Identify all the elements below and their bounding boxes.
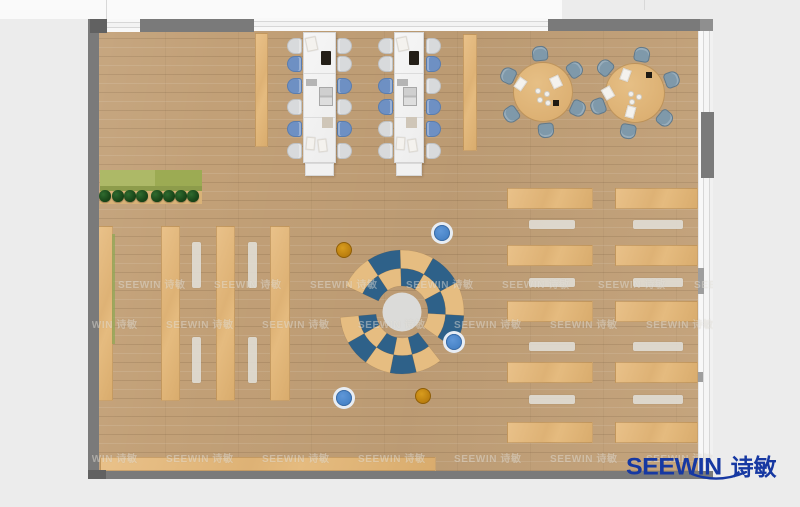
wall-top-right-segment (548, 19, 700, 31)
desk-seam (304, 73, 335, 74)
plant (124, 190, 136, 202)
watermark: SEEWIN 诗敏 (214, 276, 282, 291)
desk-chair (426, 121, 441, 137)
reading-table (615, 188, 698, 209)
wall-cabinet (255, 33, 268, 147)
round-meeting-table (513, 62, 573, 122)
reading-table (507, 188, 593, 209)
reading-table-column (216, 226, 235, 401)
planter-box (155, 170, 202, 186)
watermark: SEEWIN 诗敏 (454, 450, 522, 465)
wall-left (88, 19, 99, 479)
paper (407, 138, 418, 152)
desk-chair (378, 78, 393, 94)
plate (535, 88, 541, 94)
desk-chair (287, 38, 302, 54)
plant (99, 190, 111, 202)
desk-chair (426, 38, 441, 54)
desk-chair (287, 56, 302, 72)
bench-runner (248, 337, 257, 383)
watermark: SEEWIN 诗敏 (454, 316, 522, 331)
desk-accessory (397, 79, 408, 86)
reading-table (615, 422, 698, 443)
bench-runner (529, 395, 575, 404)
watermark: SEEWIN 诗敏 (262, 316, 330, 331)
plate (537, 97, 543, 103)
watermark: SEEWIN 诗敏 (166, 450, 234, 465)
seewin-logo: SEEWIN 诗敏 (626, 448, 777, 482)
desk-chair (426, 143, 441, 159)
desk-chair (337, 38, 352, 54)
bench-runner (529, 220, 575, 229)
tablet (322, 117, 333, 128)
watermark: SEEWIN 诗敏 (358, 316, 426, 331)
meeting-chair (531, 45, 548, 61)
tablet (553, 100, 559, 106)
wall-bottom (88, 471, 713, 479)
watermark: SEEWIN 诗敏 (358, 450, 426, 465)
stool-blue (336, 390, 352, 406)
desk-chair (337, 99, 352, 115)
watermark: SEEWIN 诗敏 (550, 316, 618, 331)
logo-swoosh-icon (690, 471, 750, 483)
desk-chair (337, 143, 352, 159)
window-mullion (698, 372, 703, 382)
desk-end-cabinet (305, 163, 334, 176)
floor-content: SEEWIN 诗敏SEEWIN 诗敏SEEWIN 诗敏SEEWIN 诗敏SEEW… (92, 20, 713, 478)
bench-runner (633, 220, 683, 229)
watermark: SEEWIN 诗敏 (92, 316, 138, 331)
laptop (409, 51, 419, 65)
meeting-chair (633, 46, 651, 64)
exterior-line (644, 0, 645, 10)
desk-accessory (306, 79, 317, 86)
watermark: SEEWIN 诗敏 (694, 276, 713, 291)
plant (151, 190, 163, 202)
desk-end-cabinet (396, 163, 422, 176)
plate (628, 91, 634, 97)
plate (636, 94, 642, 100)
desk-chair (337, 121, 352, 137)
paper (305, 137, 315, 151)
plant (112, 190, 124, 202)
stool-blue (446, 334, 462, 350)
desk-chair (287, 121, 302, 137)
stool-orange (336, 242, 352, 258)
meeting-chair (662, 70, 682, 90)
wall-cabinet (463, 34, 477, 151)
bench-runner (192, 337, 201, 383)
stool-blue (434, 225, 450, 241)
desk-chair (378, 56, 393, 72)
meeting-chair (619, 123, 637, 141)
desk-chair (287, 143, 302, 159)
desk-chair (378, 143, 393, 159)
lounge-circle-seating (327, 237, 477, 387)
desk-chair (426, 56, 441, 72)
bench-runner (529, 342, 575, 351)
plant (136, 190, 148, 202)
watermark: SEEWIN 诗敏 (118, 276, 186, 291)
wall-corner-bottom-left (88, 470, 106, 479)
watermark: SEEWIN 诗敏 (166, 316, 234, 331)
desk-seam (395, 73, 423, 74)
reading-table (507, 245, 593, 266)
bench-runner (633, 342, 683, 351)
laptop (321, 51, 331, 65)
bench-runner (633, 395, 683, 404)
desk-chair (337, 56, 352, 72)
desk-chair (337, 78, 352, 94)
wood-floor: SEEWIN 诗敏SEEWIN 诗敏SEEWIN 诗敏SEEWIN 诗敏SEEW… (92, 20, 713, 478)
watermark: SEEWIN 诗敏 (598, 276, 666, 291)
plate (545, 100, 551, 106)
plate (544, 91, 550, 97)
reading-table (615, 362, 698, 383)
desk-chair (378, 38, 393, 54)
wall-pillar-right (701, 112, 714, 178)
reading-table-column (270, 226, 290, 401)
watermark: SEEWIN 诗敏 (92, 450, 138, 465)
lounge-seat-segment (390, 354, 416, 374)
plant (187, 190, 199, 202)
watermark: SEEWIN 诗敏 (262, 450, 330, 465)
plate (629, 99, 635, 105)
desk-chair (378, 99, 393, 115)
reading-table-column (98, 226, 113, 401)
laptop (319, 87, 333, 106)
desk-chair (287, 78, 302, 94)
paper (317, 139, 328, 153)
planter-box (100, 170, 155, 186)
wall-top-left-segment (140, 19, 254, 32)
window-top (254, 18, 548, 31)
window-top-left (107, 19, 140, 32)
tablet (406, 117, 417, 128)
wall-corner-top-left (90, 19, 107, 33)
meeting-chair (538, 123, 555, 139)
reading-table (615, 245, 698, 266)
tablet (646, 72, 652, 78)
exterior-line (106, 0, 107, 19)
desk-chair (426, 78, 441, 94)
desk-chair (378, 121, 393, 137)
exterior-top-band (0, 0, 562, 19)
watermark: SEEWIN 诗敏 (502, 276, 570, 291)
watermark: SEEWIN 诗敏 (550, 450, 618, 465)
watermark: SEEWIN 诗敏 (646, 316, 713, 331)
watermark: SEEWIN 诗敏 (406, 276, 474, 291)
wall-corner-top-right (700, 19, 713, 31)
window-right (698, 31, 713, 471)
desk-chair (426, 99, 441, 115)
reading-table-column (161, 226, 180, 401)
plant (163, 190, 175, 202)
paper (396, 137, 406, 151)
reading-table (507, 422, 593, 443)
stool-orange (415, 388, 431, 404)
desk-chair (287, 99, 302, 115)
laptop (403, 87, 417, 106)
reading-table (507, 362, 593, 383)
bench-runner (192, 242, 201, 288)
floor-plan-canvas: SEEWIN 诗敏SEEWIN 诗敏SEEWIN 诗敏SEEWIN 诗敏SEEW… (0, 0, 800, 507)
plant (175, 190, 187, 202)
watermark: SEEWIN 诗敏 (310, 276, 378, 291)
